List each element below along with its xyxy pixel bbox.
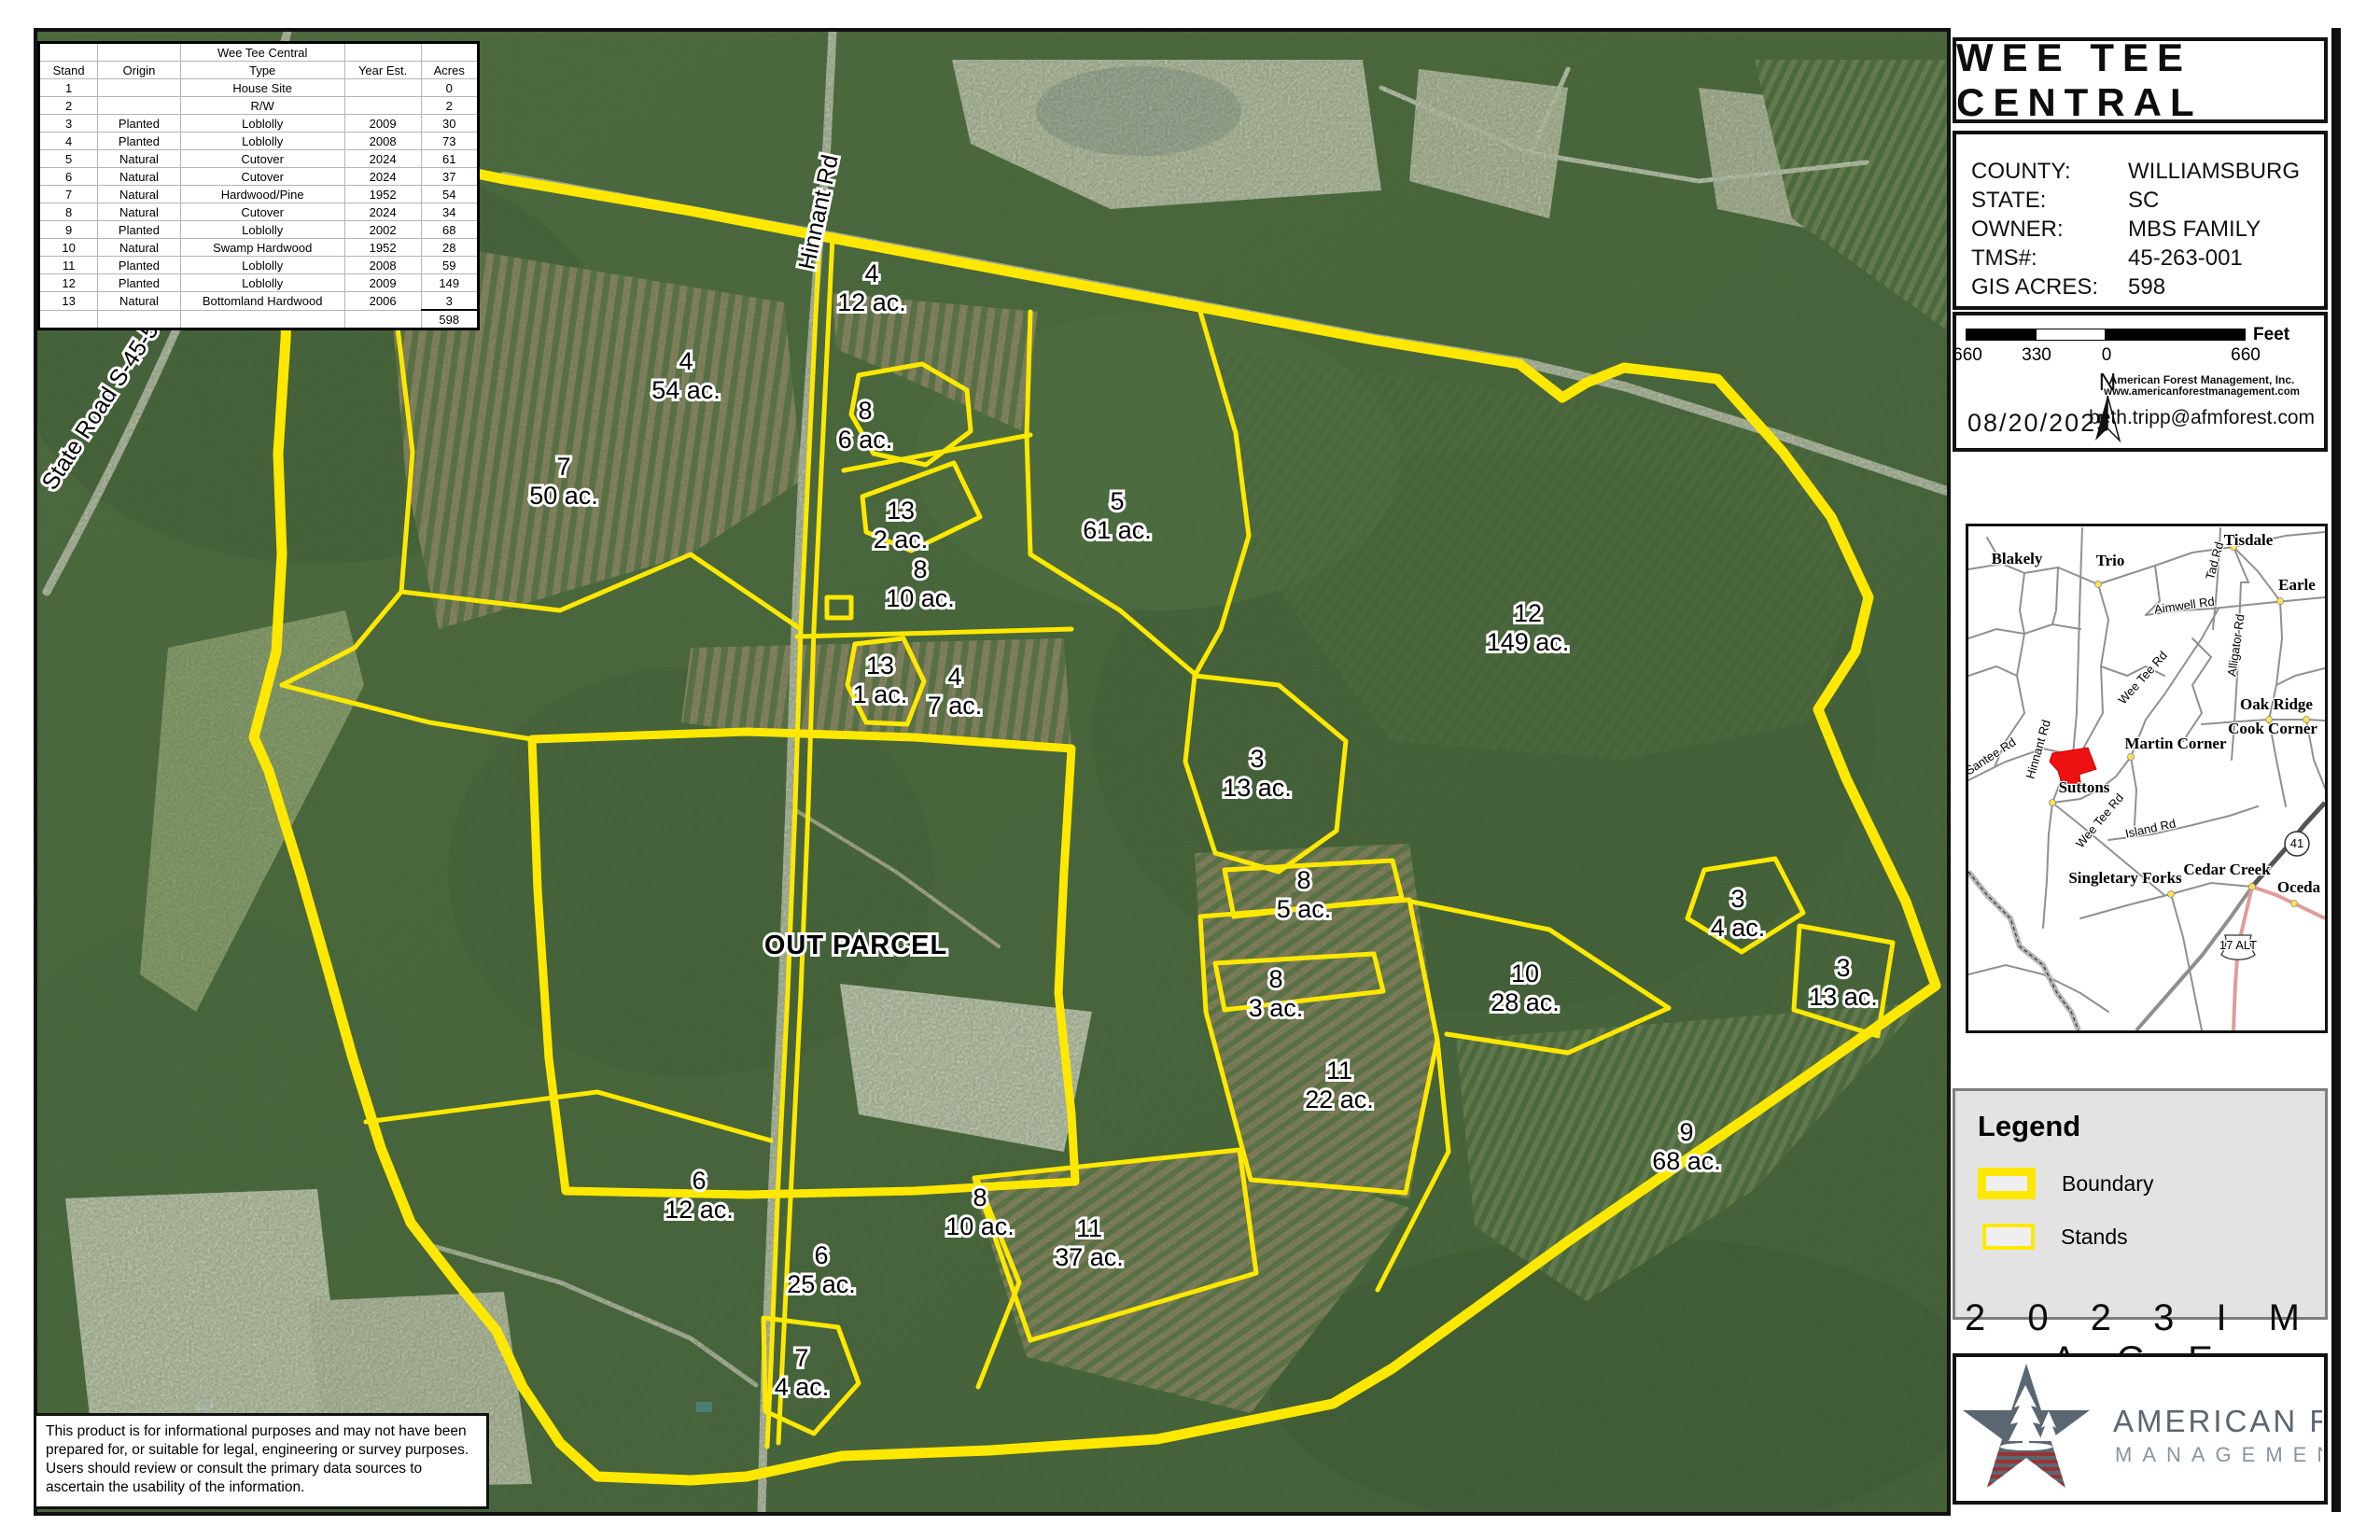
legend-label-boundary: Boundary bbox=[2062, 1171, 2153, 1197]
legend-title: Legend bbox=[1978, 1110, 2325, 1143]
locator-canvas: BlakelyTrioTisdaleEarleOak RidgeCook Cor… bbox=[1968, 526, 2325, 1030]
locator-town-label: Oak Ridge bbox=[2240, 695, 2313, 713]
property-info-box: COUNTY:WILLIAMSBURG STATE:SC OWNER:MBS F… bbox=[1953, 131, 2328, 310]
stand-table: Wee Tee CentralStandOriginTypeYear Est.A… bbox=[37, 41, 480, 330]
table-row: 5NaturalCutover202461 bbox=[39, 150, 479, 168]
county-value: WILLIAMSBURG bbox=[2128, 157, 2300, 186]
owner-value: MBS FAMILY bbox=[2128, 215, 2261, 244]
locator-town-label: Martin Corner bbox=[2124, 735, 2227, 752]
state-label: STATE: bbox=[1971, 186, 2128, 215]
table-row: 3PlantedLoblolly200930 bbox=[39, 115, 479, 133]
town-dot bbox=[2291, 901, 2298, 907]
legend-label-stands: Stands bbox=[2061, 1225, 2128, 1250]
info-row-state: STATE:SC bbox=[1971, 186, 2324, 215]
locator-road-label: Aimwell Rd bbox=[2153, 595, 2215, 617]
contact-block: American Forest Management, Inc. www.ame… bbox=[2089, 373, 2315, 429]
locator-town-label: Tisdale bbox=[2224, 531, 2274, 549]
map-sheet: Hinnant RdState Road S-45-50 412 ac.454 … bbox=[0, 0, 2380, 1540]
boundary-swatch bbox=[1978, 1168, 2036, 1199]
table-row: 7NaturalHardwood/Pine195254 bbox=[39, 186, 479, 203]
table-row: 6NaturalCutover202437 bbox=[39, 168, 479, 186]
locator-road-label: Island Rd bbox=[2124, 817, 2177, 841]
locator-town-label: Oceda bbox=[2277, 878, 2321, 896]
table-row: 598 bbox=[39, 310, 479, 329]
scale-tick: 660 bbox=[1953, 345, 1982, 366]
info-row-tms: TMS#:45-263-001 bbox=[1971, 244, 2324, 273]
locator-road-label: Alligator Rd bbox=[2224, 613, 2247, 678]
table-row: 2R/W2 bbox=[39, 97, 479, 115]
table-row: 10NaturalSwamp Hardwood195228 bbox=[39, 239, 479, 257]
legend-item-boundary: Boundary bbox=[1978, 1168, 2325, 1199]
stands-swatch bbox=[1982, 1224, 2035, 1250]
info-row-county: COUNTY:WILLIAMSBURG bbox=[1971, 157, 2324, 186]
table-row: StandOriginTypeYear Est.Acres bbox=[39, 62, 479, 79]
company-name: American Forest Management, Inc. bbox=[2089, 373, 2315, 386]
gis-acres-value: 598 bbox=[2128, 273, 2165, 301]
info-row-gis-acres: GIS ACRES:598 bbox=[1971, 273, 2324, 301]
tms-label: TMS#: bbox=[1971, 244, 2128, 273]
scale-unit: Feet bbox=[2253, 325, 2289, 345]
locator-map: BlakelyTrioTisdaleEarleOak RidgeCook Cor… bbox=[1966, 524, 2328, 1033]
town-dot bbox=[2277, 598, 2284, 605]
town-dot bbox=[2050, 800, 2056, 806]
table-row: 12PlantedLoblolly2009149 bbox=[39, 274, 479, 292]
table-row: Wee Tee Central bbox=[39, 43, 479, 62]
route-shield-label: 17 ALT bbox=[2219, 938, 2257, 952]
route-shield-label: 41 bbox=[2290, 836, 2303, 850]
scale-box: Feet 660 330 0 660 08/20/2025 N American… bbox=[1953, 312, 2328, 452]
locator-town-label: Cook Corner bbox=[2228, 720, 2317, 737]
title-box: WEE TEE CENTRAL bbox=[1953, 37, 2328, 123]
legend-item-stands: Stands bbox=[1978, 1224, 2325, 1250]
locator-road-label: Santee Rd bbox=[1968, 735, 2018, 777]
town-dot bbox=[2168, 891, 2175, 898]
tms-value: 45-263-001 bbox=[2128, 244, 2243, 273]
logo-line2: MANAGEMENT bbox=[2115, 1443, 2322, 1466]
locator-town-label: Earle bbox=[2278, 576, 2316, 594]
logo-line1: AMERICAN FOREST bbox=[2113, 1404, 2322, 1438]
state-value: SC bbox=[2128, 186, 2159, 215]
logo-box: AMERICAN FOREST MANAGEMENT bbox=[1953, 1353, 2328, 1505]
owner-label: OWNER: bbox=[1971, 215, 2128, 244]
table-row: 9PlantedLoblolly200268 bbox=[39, 221, 479, 239]
legend: Legend Boundary Stands bbox=[1953, 1088, 2328, 1320]
table-row: 11PlantedLoblolly200859 bbox=[39, 257, 479, 274]
map-title: WEE TEE CENTRAL bbox=[1956, 35, 2324, 125]
locator-town-label: Singletary Forks bbox=[2068, 869, 2182, 887]
town-dot bbox=[2128, 754, 2135, 761]
scale-tick: 0 bbox=[2102, 345, 2112, 366]
town-dot bbox=[2249, 884, 2256, 890]
locator-creek bbox=[1968, 872, 2079, 1030]
info-row-owner: OWNER:MBS FAMILY bbox=[1971, 215, 2324, 244]
locator-town-label: Cedar Creek bbox=[2183, 861, 2271, 878]
scale-bar bbox=[1966, 329, 2246, 341]
locator-town-label: Blakely bbox=[1992, 550, 2043, 567]
county-label: COUNTY: bbox=[1971, 157, 2128, 186]
locator-roads bbox=[1968, 528, 2325, 1030]
table-row: 13NaturalBottomland Hardwood20063 bbox=[39, 292, 479, 311]
scale-tick: 660 bbox=[2231, 345, 2261, 366]
locator-town-label: Suttons bbox=[2059, 778, 2110, 796]
out-parcel-label: OUT PARCEL bbox=[764, 931, 947, 960]
locator-road-label: Tad Rd bbox=[2203, 540, 2226, 581]
contact-email: beth.tripp@afmforest.com bbox=[2089, 407, 2315, 429]
locator-town-label: Trio bbox=[2096, 552, 2125, 569]
town-dot bbox=[2095, 581, 2102, 588]
gis-acres-label: GIS ACRES: bbox=[1971, 273, 2128, 301]
afm-logo: AMERICAN FOREST MANAGEMENT bbox=[1956, 1359, 2322, 1499]
disclaimer-text: This product is for informational purpos… bbox=[34, 1413, 489, 1509]
company-website: www.americanforestmanagement.com bbox=[2089, 386, 2315, 398]
sheet-right-border bbox=[2331, 28, 2341, 1512]
scale-tick: 330 bbox=[2022, 345, 2051, 366]
table-row: 1House Site0 bbox=[39, 79, 479, 97]
table-row: 4PlantedLoblolly200873 bbox=[39, 133, 479, 150]
table-row: 8NaturalCutover202434 bbox=[39, 203, 479, 221]
